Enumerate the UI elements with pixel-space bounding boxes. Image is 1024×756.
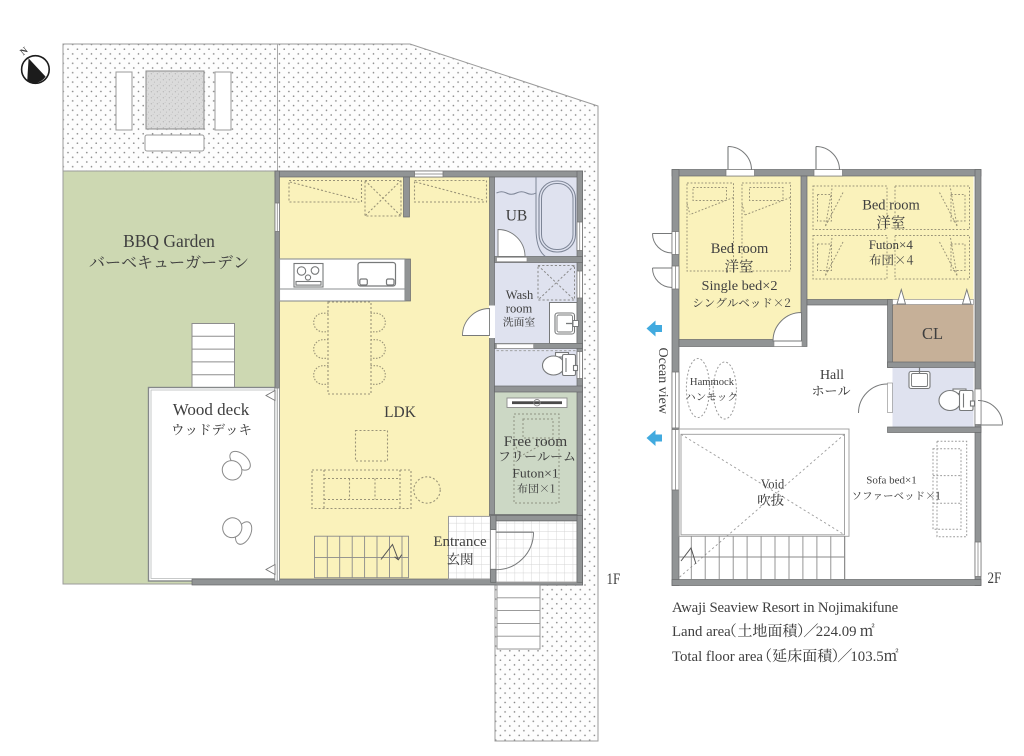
svg-text:Sofa bed×1: Sofa bed×1 bbox=[866, 475, 917, 487]
svg-text:Bed room: Bed room bbox=[862, 198, 920, 214]
svg-text:CL: CL bbox=[922, 324, 943, 343]
svg-text:Entrance: Entrance bbox=[433, 534, 487, 550]
svg-text:Wood deck: Wood deck bbox=[173, 400, 250, 419]
svg-text:Bed room: Bed room bbox=[711, 241, 769, 257]
svg-text:Futon×1: Futon×1 bbox=[512, 467, 559, 481]
svg-text:Futon×4: Futon×4 bbox=[869, 237, 914, 252]
svg-text:Ocean view: Ocean view bbox=[655, 348, 670, 415]
svg-text:Single bed×2: Single bed×2 bbox=[702, 278, 778, 293]
svg-text:1F: 1F bbox=[607, 571, 621, 588]
svg-text:LDK: LDK bbox=[384, 404, 416, 421]
svg-text:Land area: Land area bbox=[672, 624, 731, 640]
svg-text:UB: UB bbox=[506, 208, 528, 225]
svg-text:224.09: 224.09 bbox=[816, 624, 857, 640]
svg-text:room: room bbox=[506, 302, 533, 316]
svg-text:BBQ Garden: BBQ Garden bbox=[123, 231, 215, 251]
svg-text:Void: Void bbox=[761, 477, 785, 492]
svg-text:Wash: Wash bbox=[506, 288, 534, 302]
svg-text:Free room: Free room bbox=[504, 434, 568, 450]
svg-text:Hammock: Hammock bbox=[690, 377, 735, 388]
svg-text:Hall: Hall bbox=[820, 368, 844, 383]
svg-text:Awaji Seaview Resort in Nojima: Awaji Seaview Resort in Nojimakifune bbox=[672, 600, 899, 616]
svg-text:2F: 2F bbox=[988, 570, 1002, 587]
svg-text:Total floor area: Total floor area bbox=[672, 649, 763, 665]
svg-text:103.5: 103.5 bbox=[850, 649, 883, 665]
